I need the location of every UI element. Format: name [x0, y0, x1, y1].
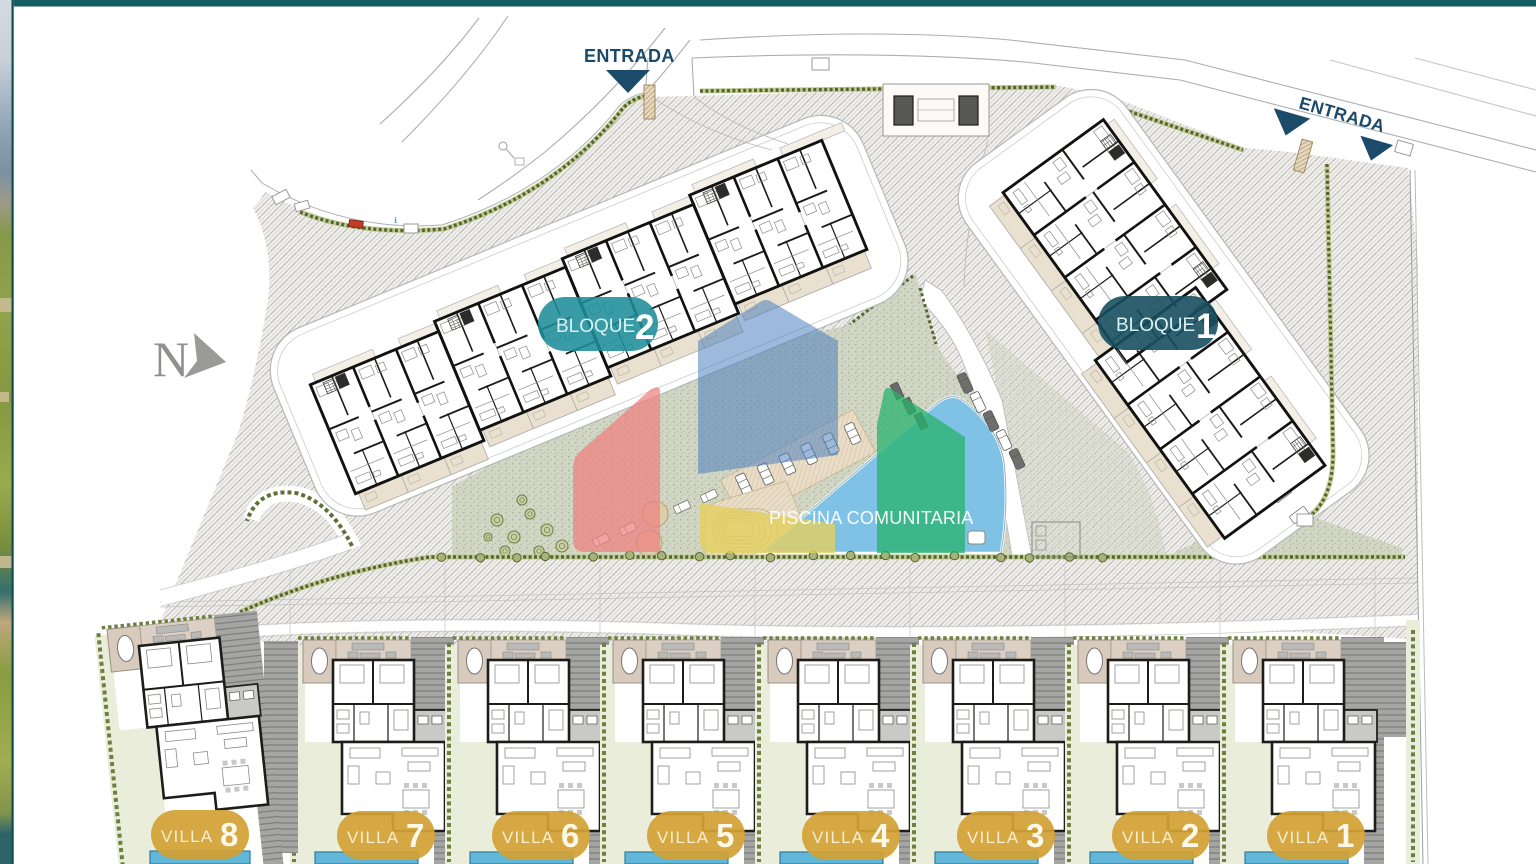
svg-text:VILLA: VILLA [502, 828, 554, 847]
svg-text:VILLA: VILLA [812, 828, 864, 847]
svg-text:8: 8 [220, 816, 238, 853]
svg-text:PISCINA COMUNITARIA: PISCINA COMUNITARIA [769, 508, 974, 528]
svg-text:ℹ: ℹ [394, 216, 397, 225]
svg-text:3: 3 [1026, 817, 1044, 854]
svg-text:VILLA: VILLA [347, 828, 399, 847]
svg-text:7: 7 [406, 817, 424, 854]
svg-text:ENTRADA: ENTRADA [584, 46, 675, 66]
svg-text:VILLA: VILLA [657, 828, 709, 847]
svg-text:4: 4 [871, 817, 890, 854]
svg-text:1: 1 [1336, 817, 1354, 854]
svg-text:1: 1 [1196, 307, 1215, 346]
svg-text:VILLA: VILLA [161, 827, 213, 846]
svg-text:N: N [153, 331, 189, 387]
svg-text:BLOQUE: BLOQUE [1116, 315, 1195, 336]
svg-text:2: 2 [1181, 817, 1199, 854]
svg-text:2: 2 [635, 308, 654, 347]
svg-text:5: 5 [716, 817, 734, 854]
svg-text:VILLA: VILLA [1122, 828, 1174, 847]
svg-text:6: 6 [561, 817, 579, 854]
svg-text:VILLA: VILLA [967, 828, 1019, 847]
svg-text:BLOQUE: BLOQUE [556, 316, 635, 337]
svg-text:VILLA: VILLA [1277, 828, 1329, 847]
